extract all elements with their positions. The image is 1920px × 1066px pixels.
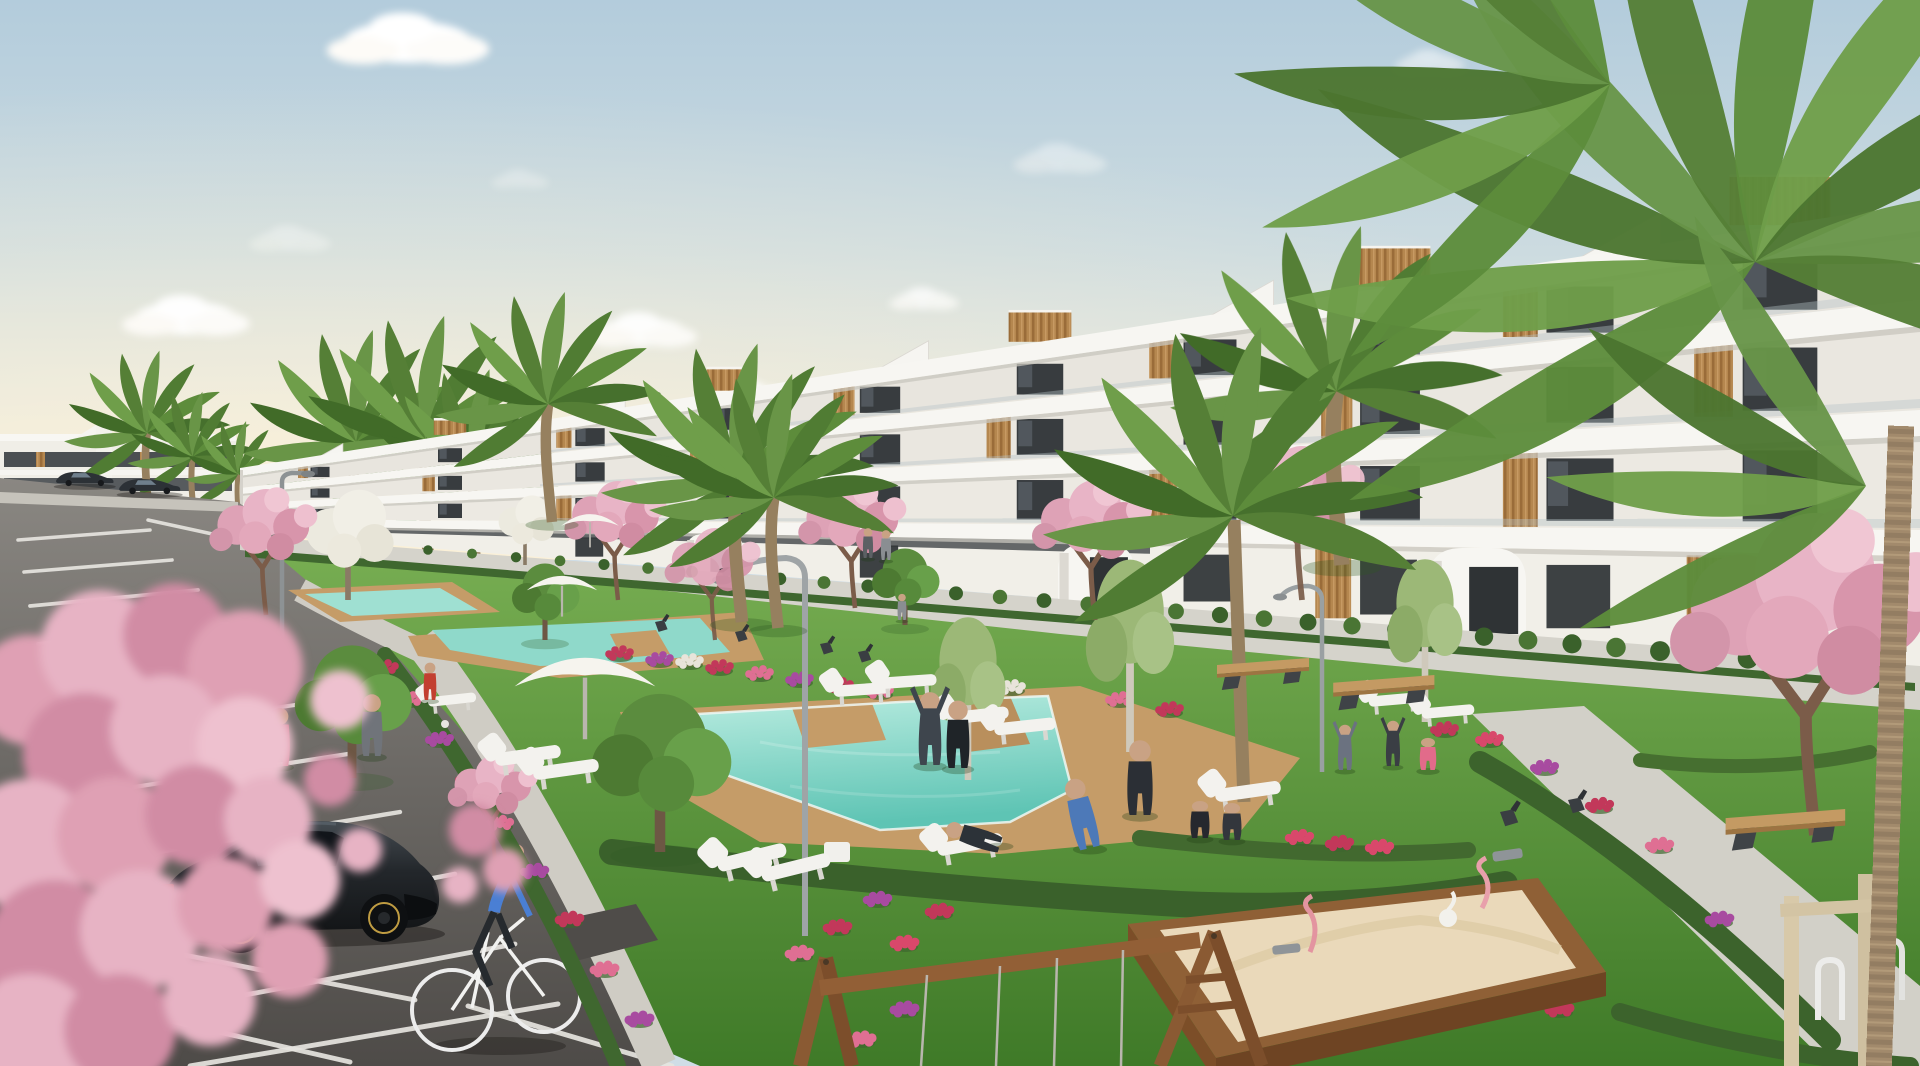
flower xyxy=(911,938,920,947)
flower xyxy=(705,664,713,672)
flower xyxy=(1155,706,1163,714)
person-shadow xyxy=(913,762,946,772)
hedge-blob xyxy=(467,549,477,559)
hedge-blob xyxy=(1475,627,1493,645)
flower xyxy=(391,662,399,670)
blossom-mass xyxy=(310,670,370,730)
flower xyxy=(555,916,564,925)
blossom-mass xyxy=(260,840,340,920)
flower xyxy=(890,940,899,949)
flower xyxy=(719,659,727,667)
flower xyxy=(1105,696,1113,704)
blossom-mass xyxy=(338,828,382,872)
hedge-blob xyxy=(993,590,1007,604)
roof-box-cap xyxy=(1009,310,1072,313)
flower xyxy=(785,950,794,959)
window-reflection xyxy=(1018,421,1032,447)
roof-box-cap xyxy=(1350,246,1431,249)
flower xyxy=(759,665,767,673)
person-shadow xyxy=(1187,836,1214,844)
flower xyxy=(823,924,832,933)
flower xyxy=(689,653,697,661)
hedge-blob xyxy=(1037,593,1052,608)
flower xyxy=(889,1005,898,1014)
soccer-ball xyxy=(441,720,449,728)
flower xyxy=(1011,679,1019,687)
flower xyxy=(1705,916,1714,925)
bolt xyxy=(823,959,829,965)
flower xyxy=(844,922,853,931)
flower xyxy=(726,662,734,670)
flower xyxy=(867,1033,876,1042)
play-post xyxy=(1784,896,1799,1066)
flower xyxy=(506,818,514,826)
hedge-blob xyxy=(1562,634,1581,653)
flower xyxy=(1496,734,1504,742)
car-shadow xyxy=(54,484,116,490)
flower xyxy=(541,866,549,874)
flower xyxy=(946,906,955,915)
flower xyxy=(1645,842,1653,850)
hedge-blob xyxy=(1650,641,1670,661)
flower xyxy=(1544,759,1552,767)
flower xyxy=(659,651,667,659)
flower xyxy=(675,658,683,666)
residential-complex-render xyxy=(0,0,1920,1066)
window-reflection xyxy=(440,504,447,514)
hedge-blob xyxy=(1168,603,1184,619)
person-shadow xyxy=(1122,811,1158,821)
cyclist-shadow xyxy=(434,1037,566,1055)
flower xyxy=(1169,701,1177,709)
blossom-mass xyxy=(164,954,256,1046)
flower xyxy=(1285,834,1293,842)
hedge-blob xyxy=(1256,610,1273,627)
flower xyxy=(785,676,793,684)
wheel-hub xyxy=(378,912,390,924)
hedge-blob xyxy=(949,586,963,600)
flower xyxy=(666,654,674,662)
flower xyxy=(910,1003,919,1012)
flower xyxy=(626,648,634,656)
person-shadow xyxy=(1335,769,1356,775)
flower xyxy=(1444,721,1452,729)
toy-swan xyxy=(1439,909,1457,927)
flower xyxy=(1726,914,1735,923)
hedge-blob xyxy=(642,562,653,573)
blossom-mass xyxy=(483,848,527,892)
bolt xyxy=(1211,933,1217,939)
flower xyxy=(1565,1003,1574,1012)
far-building-slab xyxy=(0,470,236,475)
person-shadow xyxy=(1073,845,1107,855)
flower xyxy=(745,670,753,678)
flower xyxy=(1489,731,1497,739)
arch-shade xyxy=(1060,553,1069,604)
hedge-blob xyxy=(1300,614,1317,631)
window-reflection xyxy=(577,463,586,477)
ladder-rung xyxy=(1186,976,1234,980)
wood-panel xyxy=(36,452,45,467)
roof-box xyxy=(1009,312,1072,341)
flower xyxy=(576,914,585,923)
flower xyxy=(1325,840,1333,848)
blossom-mass xyxy=(304,754,356,806)
hedge-blob xyxy=(1343,617,1360,634)
flower xyxy=(1666,840,1674,848)
wood-panel xyxy=(1503,449,1538,527)
tree-shadow xyxy=(521,639,569,650)
flower xyxy=(863,896,872,905)
window-reflection xyxy=(577,429,586,442)
rendered-scene xyxy=(0,0,1920,1066)
flower xyxy=(766,668,774,676)
person-shadow xyxy=(861,557,875,561)
person-shadow xyxy=(1383,765,1404,771)
flower xyxy=(806,948,815,957)
blossom-mass xyxy=(252,922,328,998)
flower xyxy=(925,908,934,917)
flower xyxy=(1365,844,1373,852)
window-reflection xyxy=(1018,365,1032,387)
window-reflection xyxy=(440,449,447,459)
flower xyxy=(1475,736,1483,744)
person-shadow xyxy=(1416,768,1439,775)
hedge-blob xyxy=(1212,607,1228,623)
hedge-blob xyxy=(511,552,521,562)
flower xyxy=(1606,800,1614,808)
person-shadow xyxy=(896,620,909,624)
flower xyxy=(1306,832,1314,840)
person-shadow xyxy=(357,753,387,762)
flower xyxy=(1530,764,1538,772)
flower xyxy=(619,645,627,653)
flower xyxy=(1119,691,1127,699)
entrance-opening xyxy=(1469,567,1518,634)
hedge-blob xyxy=(598,559,609,570)
tree-shadow xyxy=(881,624,929,635)
person-shadow xyxy=(1219,838,1246,846)
person-shadow xyxy=(421,699,439,704)
flower xyxy=(1346,838,1354,846)
flower xyxy=(590,966,599,975)
flower xyxy=(1176,704,1184,712)
flower xyxy=(1585,802,1593,810)
flower xyxy=(1018,682,1026,690)
flower xyxy=(425,736,433,744)
blossom-mass xyxy=(449,804,501,856)
window-reflection xyxy=(312,489,318,496)
flower xyxy=(1430,726,1438,734)
person-shadow xyxy=(879,559,893,563)
flower xyxy=(1386,842,1394,850)
hedge-blob xyxy=(1606,638,1625,657)
flower xyxy=(1451,724,1459,732)
flower xyxy=(1551,762,1559,770)
flower xyxy=(696,656,704,664)
flower xyxy=(446,734,454,742)
window-reflection xyxy=(440,477,447,487)
window-reflection xyxy=(1018,482,1032,510)
flower xyxy=(645,1013,654,1022)
flower xyxy=(884,894,893,903)
hedge-blob xyxy=(1519,631,1538,650)
car-shadow xyxy=(117,492,183,499)
hedge-blob xyxy=(555,556,566,567)
flower xyxy=(611,964,620,973)
person-shadow xyxy=(942,765,974,774)
flower xyxy=(1599,797,1607,805)
flower xyxy=(439,731,447,739)
flower xyxy=(645,656,653,664)
hedge-blob xyxy=(423,545,433,555)
flower xyxy=(605,650,613,658)
flower xyxy=(624,1015,633,1024)
blossom-mass xyxy=(442,867,478,903)
window-reflection xyxy=(861,388,873,407)
hedge-blob xyxy=(818,576,831,589)
